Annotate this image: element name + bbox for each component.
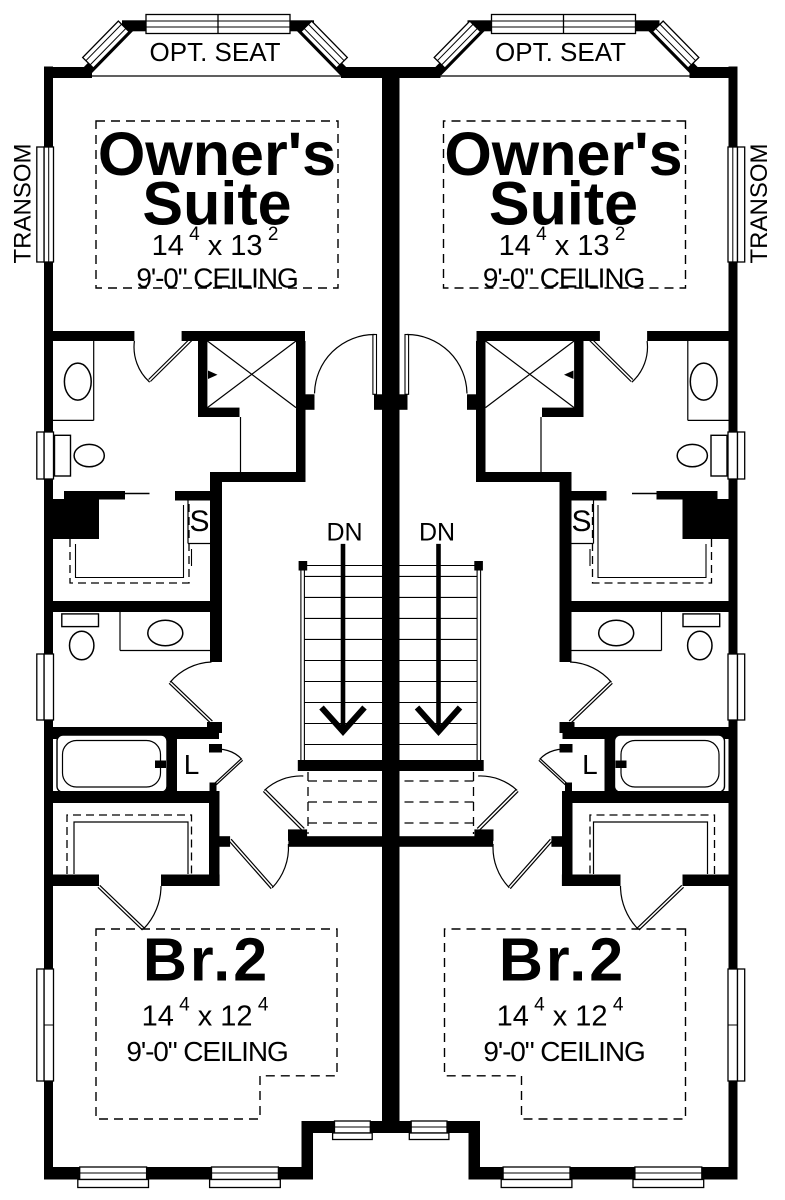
svg-text:Br.2: Br.2	[143, 926, 270, 994]
svg-text:TRANSOM: TRANSOM	[746, 144, 773, 264]
svg-text:14 4 x 13 2: 14 4 x 13 2	[499, 224, 626, 262]
svg-text:OPT. SEAT: OPT. SEAT	[495, 37, 626, 67]
svg-text:14 4 x 12 4: 14 4 x 12 4	[142, 995, 269, 1033]
svg-text:9'-0" CEILING: 9'-0" CEILING	[126, 1036, 287, 1067]
svg-text:TRANSOM: TRANSOM	[10, 144, 37, 264]
svg-text:14 4 x 13 2: 14 4 x 13 2	[152, 224, 279, 262]
svg-text:14 4 x 12 4: 14 4 x 12 4	[497, 995, 624, 1033]
svg-text:OPT. SEAT: OPT. SEAT	[150, 37, 281, 67]
svg-text:Br.2: Br.2	[499, 926, 626, 994]
svg-text:9'-0" CEILING: 9'-0" CEILING	[483, 1036, 644, 1067]
svg-text:L: L	[184, 749, 200, 780]
svg-text:DN: DN	[326, 519, 362, 547]
svg-text:9'-0" CEILING: 9'-0" CEILING	[136, 263, 297, 294]
svg-text:DN: DN	[419, 519, 455, 547]
svg-text:9'-0" CEILING: 9'-0" CEILING	[483, 263, 644, 294]
svg-text:S: S	[189, 505, 209, 538]
svg-text:S: S	[571, 505, 591, 538]
svg-text:L: L	[582, 749, 598, 780]
